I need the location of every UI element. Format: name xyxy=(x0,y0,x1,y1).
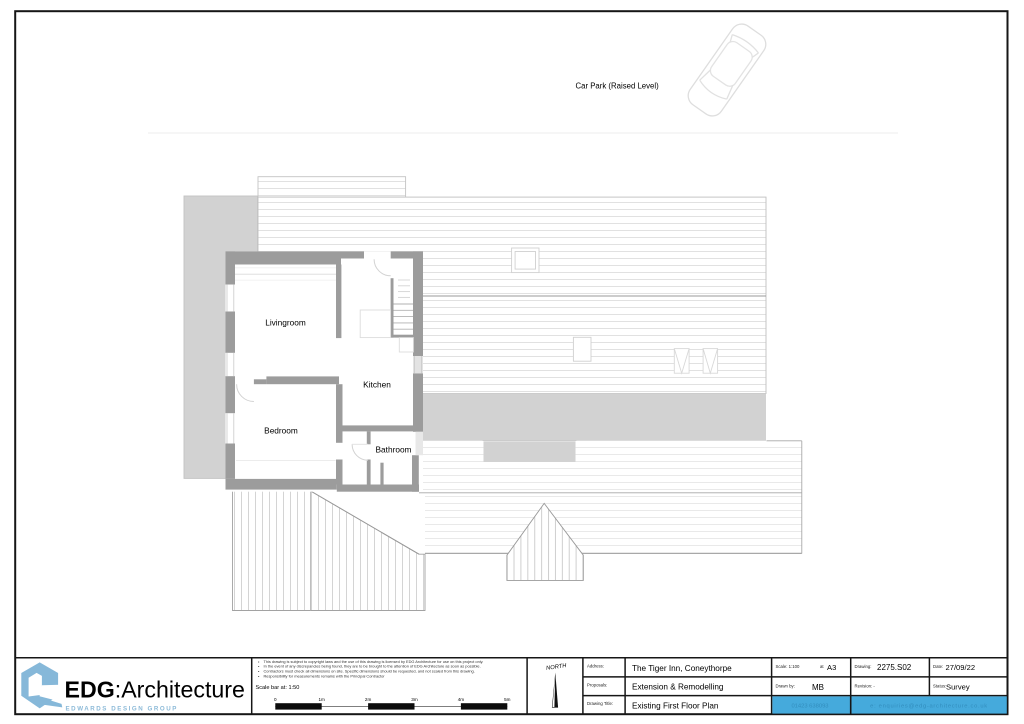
svg-text:0: 0 xyxy=(274,697,277,702)
svg-text:2m: 2m xyxy=(365,697,372,702)
svg-text:Proposals:: Proposals: xyxy=(587,682,607,687)
svg-text:Address:: Address: xyxy=(587,664,604,669)
svg-text:EDWARDS DESIGN GROUP: EDWARDS DESIGN GROUP xyxy=(66,705,178,712)
svg-text:Car Park (Raised Level): Car Park (Raised Level) xyxy=(576,81,660,90)
svg-text:Status:: Status: xyxy=(933,684,946,689)
svg-text:A3: A3 xyxy=(827,663,836,672)
svg-text:Drawn by:: Drawn by: xyxy=(776,684,795,689)
svg-text:Kitchen: Kitchen xyxy=(363,380,391,390)
svg-text:Responsibility for measurement: Responsibility for measurements remains … xyxy=(264,673,386,678)
svg-text:4m: 4m xyxy=(458,697,465,702)
svg-text:5m: 5m xyxy=(504,697,511,702)
svg-text:EDG:Architecture: EDG:Architecture xyxy=(65,677,245,703)
svg-text:Drawing:: Drawing: xyxy=(855,664,872,669)
svg-text:e: enquiries@edg-architecture: e: enquiries@edg-architecture.co.uk xyxy=(870,704,988,710)
svg-text:Bedroom: Bedroom xyxy=(264,426,298,436)
svg-text:1m: 1m xyxy=(319,697,326,702)
svg-text:3m: 3m xyxy=(411,697,418,702)
svg-text:01423 638093: 01423 638093 xyxy=(791,704,828,710)
svg-text:Revision: -: Revision: - xyxy=(855,684,876,689)
svg-text:Bathroom: Bathroom xyxy=(376,445,412,455)
svg-text:Drawing Title:: Drawing Title: xyxy=(587,701,613,706)
svg-text:Survey: Survey xyxy=(946,683,970,692)
svg-text:Scale: 1:100: Scale: 1:100 xyxy=(776,664,800,669)
svg-text:MB: MB xyxy=(812,683,824,692)
svg-text:Existing First Floor Plan: Existing First Floor Plan xyxy=(632,701,719,710)
svg-text:Scale bar at: 1:50: Scale bar at: 1:50 xyxy=(256,685,300,691)
svg-text:The Tiger Inn, Coneythorpe: The Tiger Inn, Coneythorpe xyxy=(632,664,732,673)
svg-text:27/09/22: 27/09/22 xyxy=(946,663,976,672)
svg-text:Extension & Remodelling: Extension & Remodelling xyxy=(632,683,724,692)
svg-text:Date:: Date: xyxy=(933,664,943,669)
svg-text:2275.S02: 2275.S02 xyxy=(877,663,912,672)
svg-text:Livingroom: Livingroom xyxy=(265,318,306,328)
